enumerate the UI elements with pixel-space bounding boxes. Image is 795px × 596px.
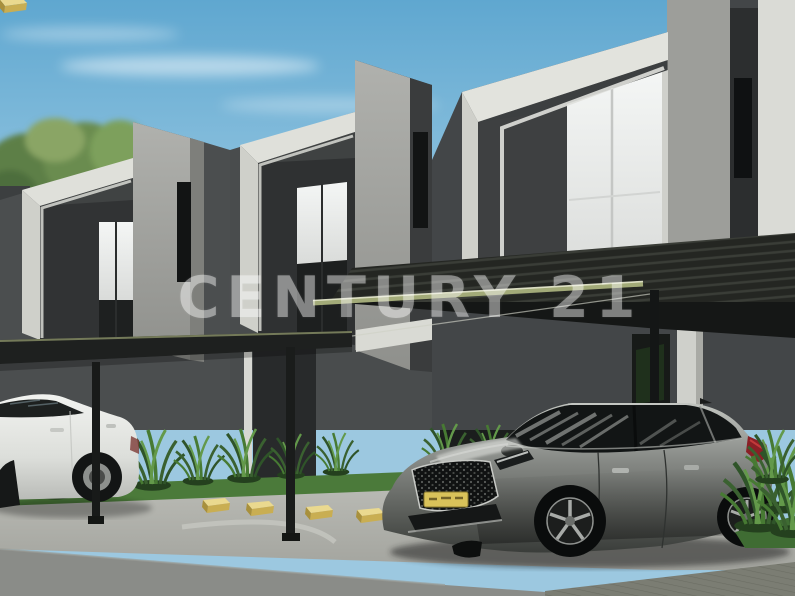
scene-canvas — [0, 0, 795, 596]
carport-post-right — [650, 290, 659, 410]
door-handle-rear — [684, 465, 699, 470]
door-handle — [612, 468, 629, 473]
middle-unit-slit-window — [413, 132, 428, 228]
front-wheel — [534, 485, 606, 557]
right-unit-narrow-window — [734, 78, 752, 178]
render-photo: CENTURY 21 — [0, 0, 795, 596]
left-unit-slit-window — [177, 182, 191, 282]
carport-post-left-1 — [92, 362, 100, 520]
carport-post-left-2 — [286, 347, 295, 537]
